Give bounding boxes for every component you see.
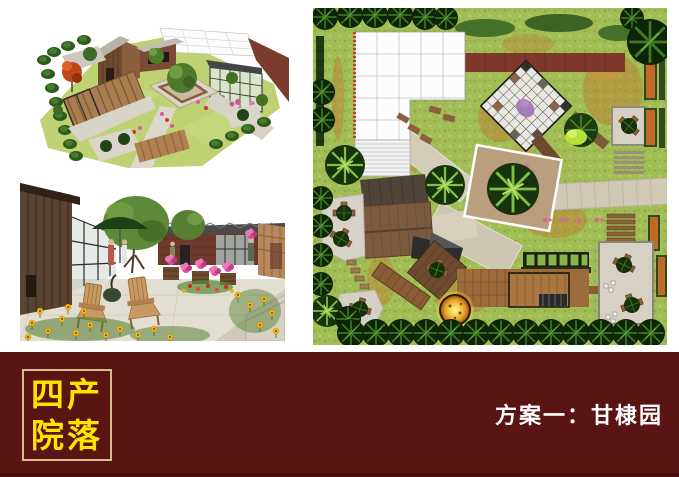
project-title-line2: 院落: [31, 415, 103, 456]
project-title-box: 四产 院落: [22, 369, 112, 461]
project-title-line1: 四产: [31, 374, 103, 415]
persp-pergola: [258, 223, 285, 279]
footer-banner: 四产 院落 方案一：甘棣园: [0, 352, 679, 477]
aerial-render-image: [10, 8, 291, 172]
perspective-render-image: [20, 183, 285, 341]
plan-deck: [457, 269, 601, 307]
perspective-render-svg: [20, 183, 285, 341]
presentation-slide: 四产 院落 方案一：甘棣园: [0, 0, 679, 477]
site-plan-image: [313, 8, 667, 345]
plan-red-bar: [451, 53, 625, 72]
plan-bottom-right-patio: [599, 242, 653, 324]
scheme-title: 方案一：甘棣园: [495, 398, 663, 430]
plan-right-patio: [612, 107, 646, 174]
site-plan-svg: [313, 8, 667, 345]
aerial-render-svg: [10, 8, 291, 172]
